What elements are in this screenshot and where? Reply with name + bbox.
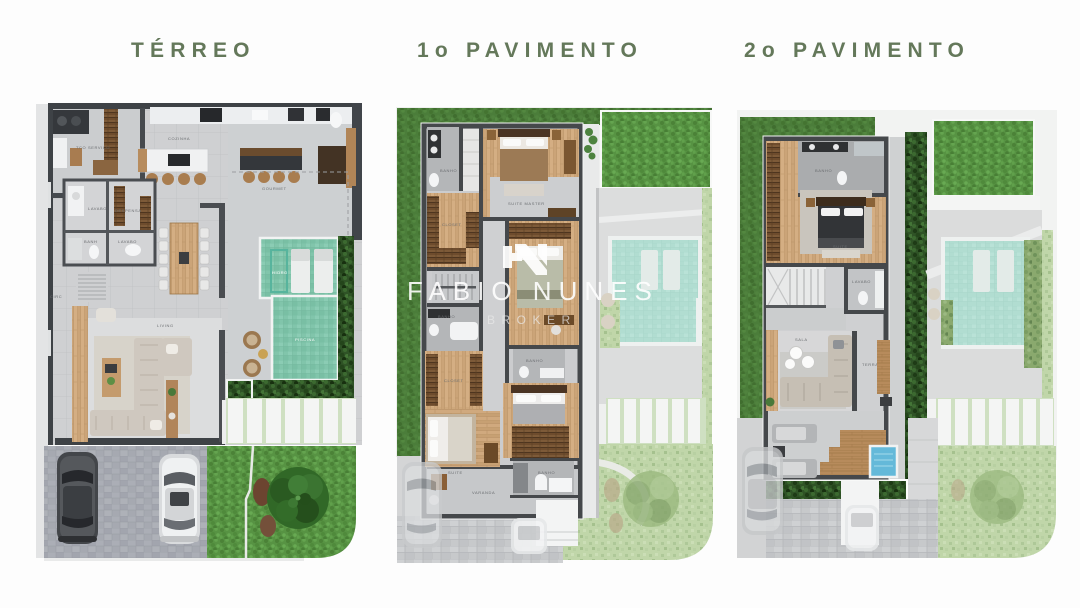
svg-text:HIDRO: HIDRO bbox=[272, 270, 288, 275]
svg-text:PISCINA: PISCINA bbox=[295, 337, 315, 342]
svg-text:LAVABO: LAVABO bbox=[118, 239, 137, 244]
svg-text:BANHO: BANHO bbox=[440, 168, 457, 173]
svg-text:TCO SERVIÇO: TCO SERVIÇO bbox=[76, 145, 110, 150]
svg-text:SUITE MASTER: SUITE MASTER bbox=[508, 201, 545, 206]
svg-text:DESPENSA: DESPENSA bbox=[115, 208, 142, 213]
svg-text:LIVING: LIVING bbox=[157, 323, 174, 328]
svg-text:COZINHA: COZINHA bbox=[168, 136, 190, 141]
svg-text:BANHO: BANHO bbox=[438, 314, 455, 319]
svg-text:BROKER: BROKER bbox=[487, 313, 577, 327]
svg-text:CIRC: CIRC bbox=[50, 294, 62, 299]
svg-text:TÉRREO: TÉRREO bbox=[131, 39, 256, 62]
svg-text:LAVABO: LAVABO bbox=[88, 206, 107, 211]
svg-text:1o PAVIMENTO: 1o PAVIMENTO bbox=[417, 39, 643, 62]
svg-text:SUITE: SUITE bbox=[833, 244, 848, 249]
svg-text:FABIO NUNES: FABIO NUNES bbox=[407, 276, 659, 306]
svg-text:2o PAVIMENTO: 2o PAVIMENTO bbox=[744, 39, 970, 62]
svg-text:BANHO: BANHO bbox=[538, 470, 555, 475]
svg-text:SUITE: SUITE bbox=[448, 470, 463, 475]
svg-text:SALA: SALA bbox=[795, 337, 808, 342]
svg-text:VARANDA: VARANDA bbox=[472, 490, 495, 495]
svg-text:LAVABO: LAVABO bbox=[852, 279, 871, 284]
svg-text:BANH: BANH bbox=[84, 239, 98, 244]
svg-text:BANHO: BANHO bbox=[815, 168, 832, 173]
svg-text:CLOSET: CLOSET bbox=[442, 222, 462, 227]
svg-text:BANHO: BANHO bbox=[526, 358, 543, 363]
svg-text:GOURMET: GOURMET bbox=[262, 186, 287, 191]
svg-text:CLOSET: CLOSET bbox=[444, 378, 464, 383]
